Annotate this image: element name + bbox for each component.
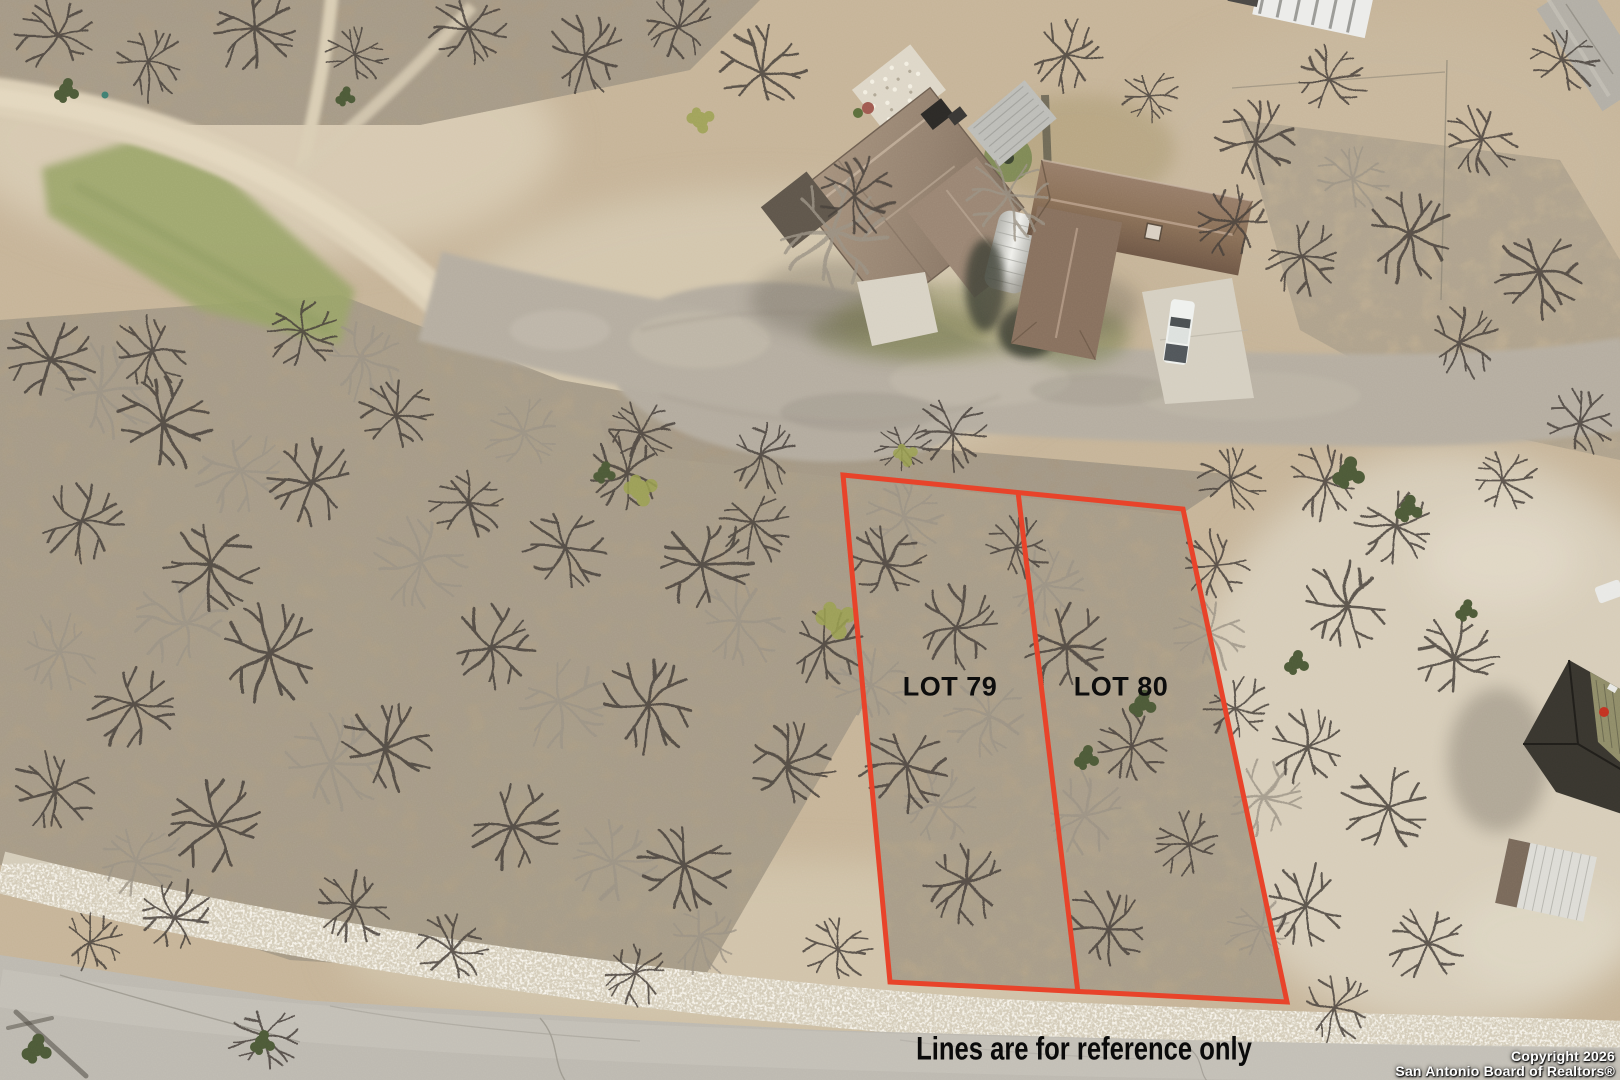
lot-79-label: LOT 79 [903,672,998,703]
copyright-line1: Copyright 2026 [1395,1049,1615,1064]
lot-80-label: LOT 80 [1074,672,1169,703]
copyright-line2: San Antonio Board of Realtors® [1395,1064,1615,1079]
reference-disclaimer: Lines are for reference only [916,1031,1252,1068]
aerial-photo-scene [0,0,1620,1080]
copyright-watermark: Copyright 2026 San Antonio Board of Real… [1395,1049,1615,1079]
aerial-photo: LOT 79 LOT 80 Lines are for reference on… [0,0,1620,1080]
photo-grain [0,0,1620,1080]
